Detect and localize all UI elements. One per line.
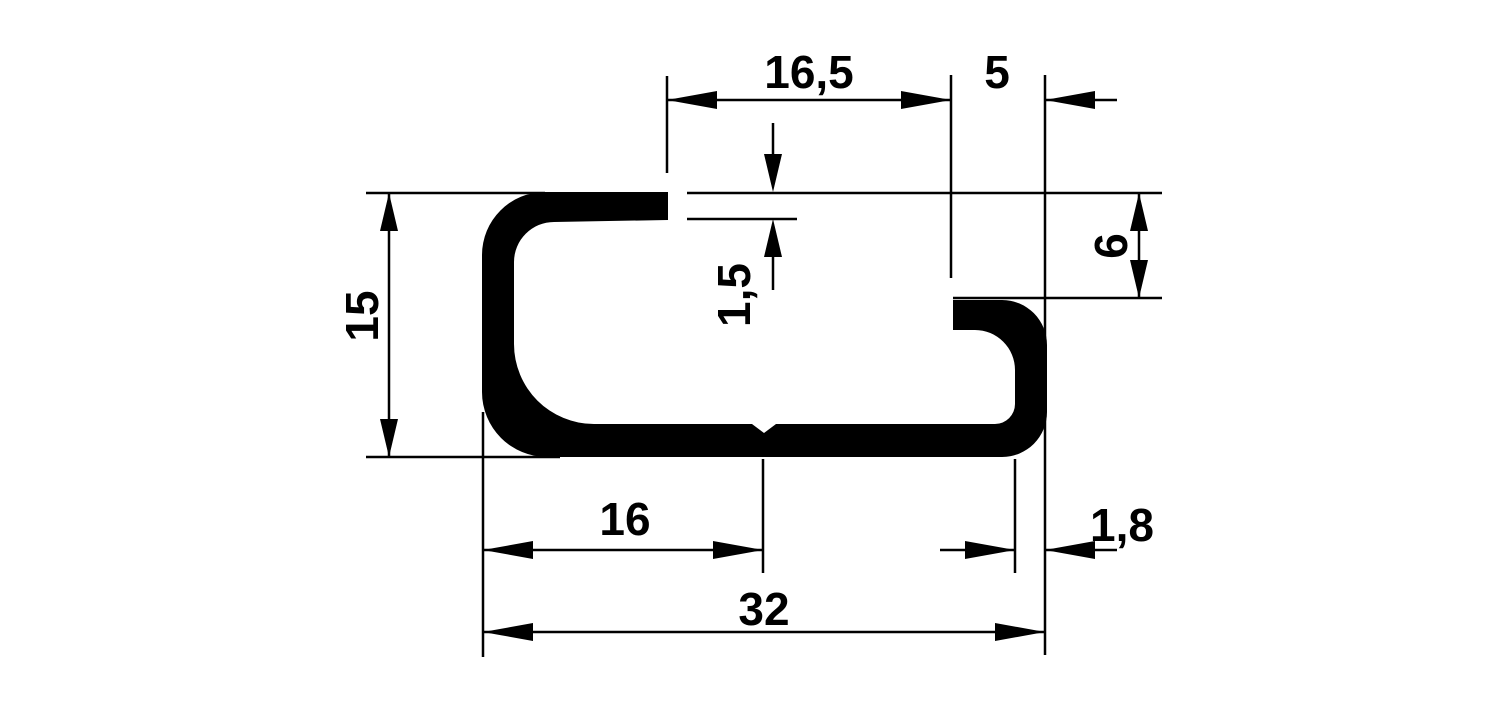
dimension-drawing: 16,5 5 1,5 6 15 16 (0, 0, 1500, 703)
arrowhead-up (764, 219, 782, 257)
arrowhead-right (901, 91, 951, 109)
dimension-label-material-thickness: 1,5 (708, 263, 760, 327)
arrowhead-down (380, 419, 398, 457)
arrowhead-down (764, 154, 782, 192)
dimension-label-lip-thickness: 1,8 (1090, 499, 1154, 551)
dimension-material-thickness: 1,5 (687, 123, 797, 327)
dimension-top-opening: 16,5 (667, 46, 951, 278)
dimension-profile-width: 32 (483, 583, 1045, 641)
dimension-label-profile-height: 15 (336, 290, 388, 341)
dimension-lip-to-edge: 5 (984, 46, 1117, 109)
drawing-canvas: 16,5 5 1,5 6 15 16 (0, 0, 1500, 703)
arrowhead-right (965, 541, 1015, 559)
dimension-label-left-to-center: 16 (599, 493, 650, 545)
arrowhead-left (1045, 541, 1095, 559)
dimension-lip-height: 6 (953, 193, 1162, 298)
arrowhead-left (483, 623, 533, 641)
c-profile-cross-section (482, 192, 1047, 457)
shared-extension-lines (687, 75, 1162, 655)
dimension-label-lip-to-edge: 5 (984, 46, 1010, 98)
arrowhead-left (667, 91, 717, 109)
arrowhead-left (1045, 91, 1095, 109)
dimension-label-profile-width: 32 (738, 583, 789, 635)
dimension-label-lip-height: 6 (1085, 233, 1137, 259)
arrowhead-down (1130, 260, 1148, 298)
arrowhead-right (995, 623, 1045, 641)
arrowhead-up (1130, 193, 1148, 231)
arrowhead-up (380, 193, 398, 231)
arrowhead-right (713, 541, 763, 559)
dimension-label-top-opening: 16,5 (764, 46, 854, 98)
dimension-lip-thickness: 1,8 (940, 459, 1154, 573)
arrowhead-left (483, 541, 533, 559)
